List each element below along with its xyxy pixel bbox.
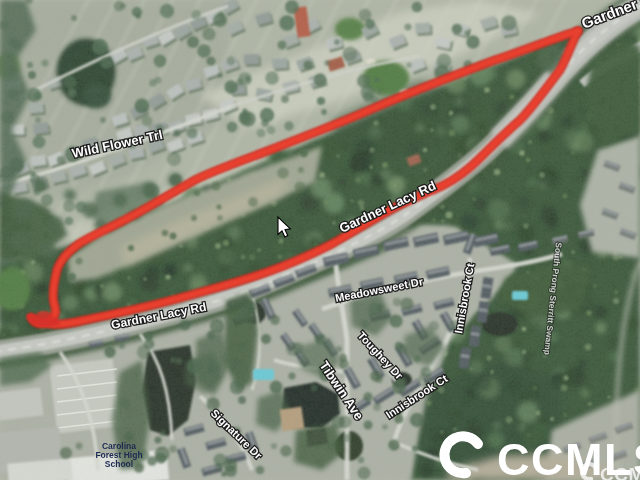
svg-text:CCMLS: CCMLS bbox=[600, 464, 640, 480]
svg-text:School: School bbox=[105, 459, 133, 469]
